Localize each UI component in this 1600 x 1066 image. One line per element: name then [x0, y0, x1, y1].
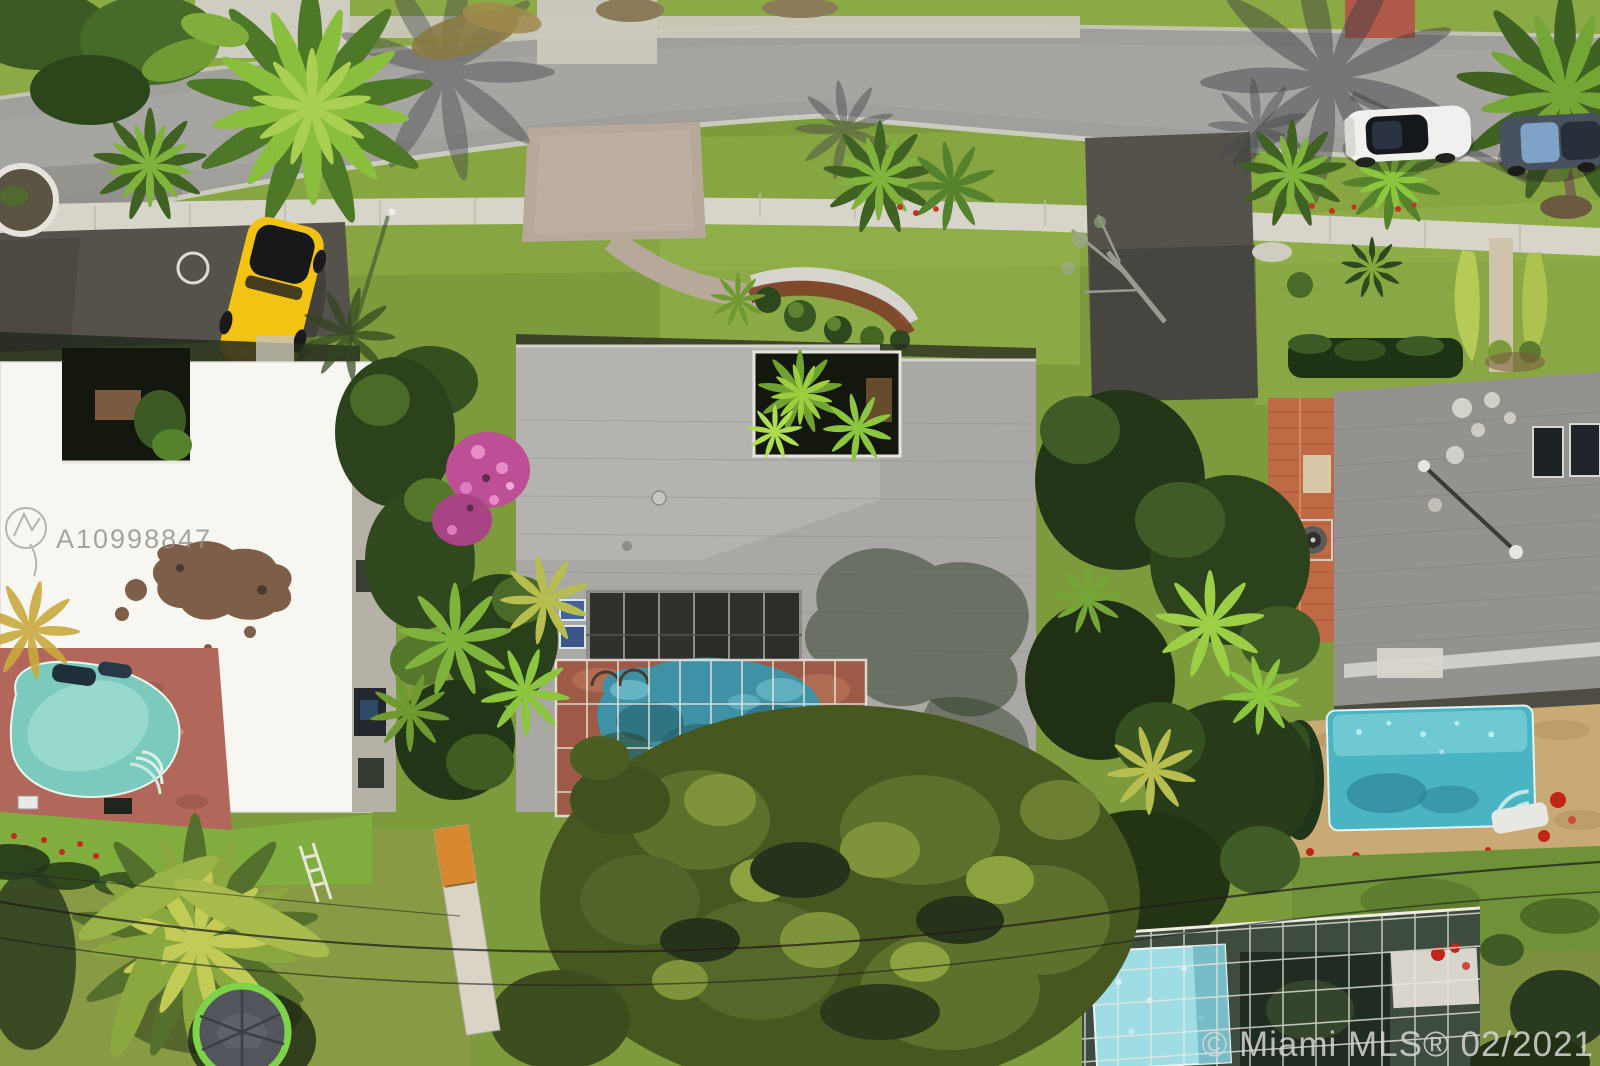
copyright-watermark: © Miami MLS® 02/2021 [1201, 1025, 1594, 1064]
roof-hatch [1303, 455, 1331, 493]
aerial-photo: A10998847 © Miami MLS® 02/2021 [0, 0, 1600, 1066]
mls-id-watermark: A10998847 [56, 524, 212, 554]
aerial-photo-canvas: A10998847 © Miami MLS® 02/2021 [0, 0, 1600, 1066]
cooler [18, 796, 38, 809]
dark-suv [1496, 112, 1600, 185]
skylight-1 [1533, 427, 1563, 477]
red-flowers [1550, 792, 1566, 808]
roof-vent [652, 491, 666, 505]
suv-windshield [1520, 122, 1560, 164]
grill [104, 798, 132, 814]
skylight-2 [1570, 424, 1600, 476]
bottom-tree-canopy [490, 705, 1140, 1066]
